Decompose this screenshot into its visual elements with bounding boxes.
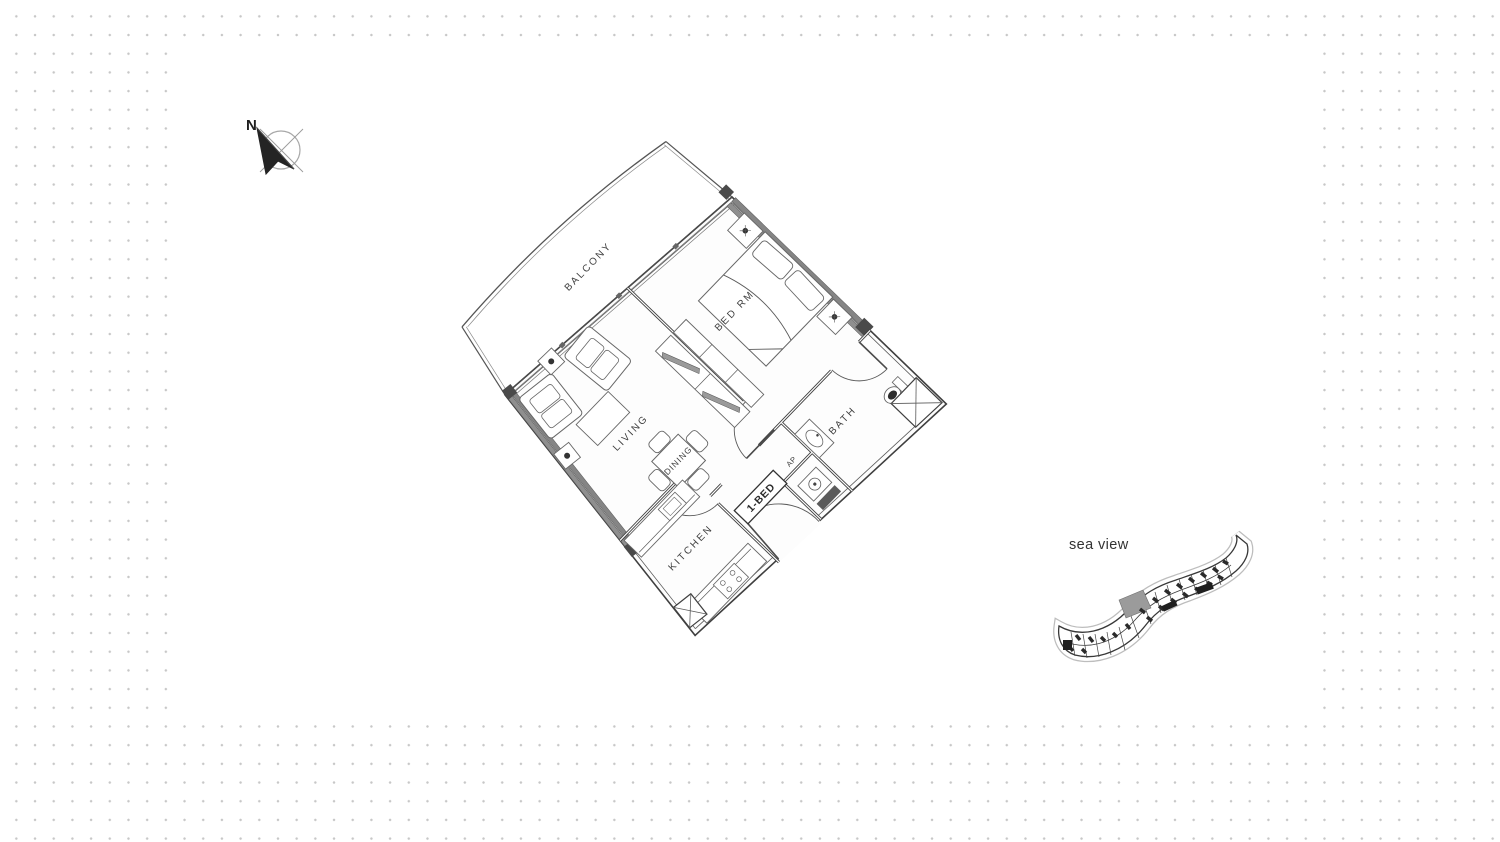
floor-plan: BED RM <box>419 120 950 649</box>
sea-view-label: sea view <box>1069 537 1129 553</box>
north-label: N <box>246 117 257 134</box>
page-canvas: N <box>0 0 1500 842</box>
floorplan-drawing: N <box>0 0 1500 842</box>
north-compass: N <box>246 117 303 174</box>
keyplan-building-outline <box>1059 535 1248 657</box>
key-plan: sea view <box>1059 535 1248 658</box>
